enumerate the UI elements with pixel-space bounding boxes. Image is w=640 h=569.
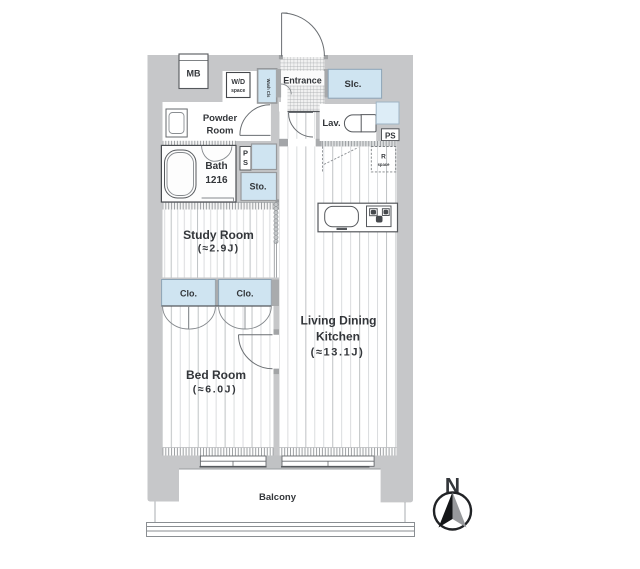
svg-text:Sto.: Sto. [250,182,267,192]
svg-text:Bath: Bath [205,161,227,172]
svg-text:W/D: W/D [231,79,245,86]
svg-text:Balcony: Balcony [259,492,297,503]
svg-text:MB: MB [187,69,201,79]
svg-text:S: S [243,158,248,167]
svg-text:(≈6.0J): (≈6.0J) [193,384,237,396]
svg-text:space: space [231,88,245,94]
svg-text:Living Dining: Living Dining [301,313,377,327]
svg-text:Wash Cls: Wash Cls [266,79,271,98]
svg-text:Lav.: Lav. [322,118,340,129]
svg-text:Study Room: Study Room [183,228,254,242]
svg-text:1216: 1216 [205,175,228,186]
svg-text:Kitchen: Kitchen [316,330,360,344]
svg-text:SIc.: SIc. [345,79,362,90]
svg-text:Room: Room [207,126,234,137]
svg-text:R: R [381,154,386,161]
svg-text:Powder: Powder [203,113,238,124]
svg-text:Entrance: Entrance [283,76,322,86]
svg-text:(≈2.9J): (≈2.9J) [198,243,240,255]
svg-text:Clo.: Clo. [180,289,197,299]
svg-text:P: P [243,149,248,158]
svg-text:space: space [378,162,391,167]
svg-text:Clo.: Clo. [237,289,254,299]
svg-text:(≈13.1J): (≈13.1J) [311,347,365,359]
svg-text:PS: PS [385,131,396,140]
svg-text:Bed Room: Bed Room [186,368,246,382]
